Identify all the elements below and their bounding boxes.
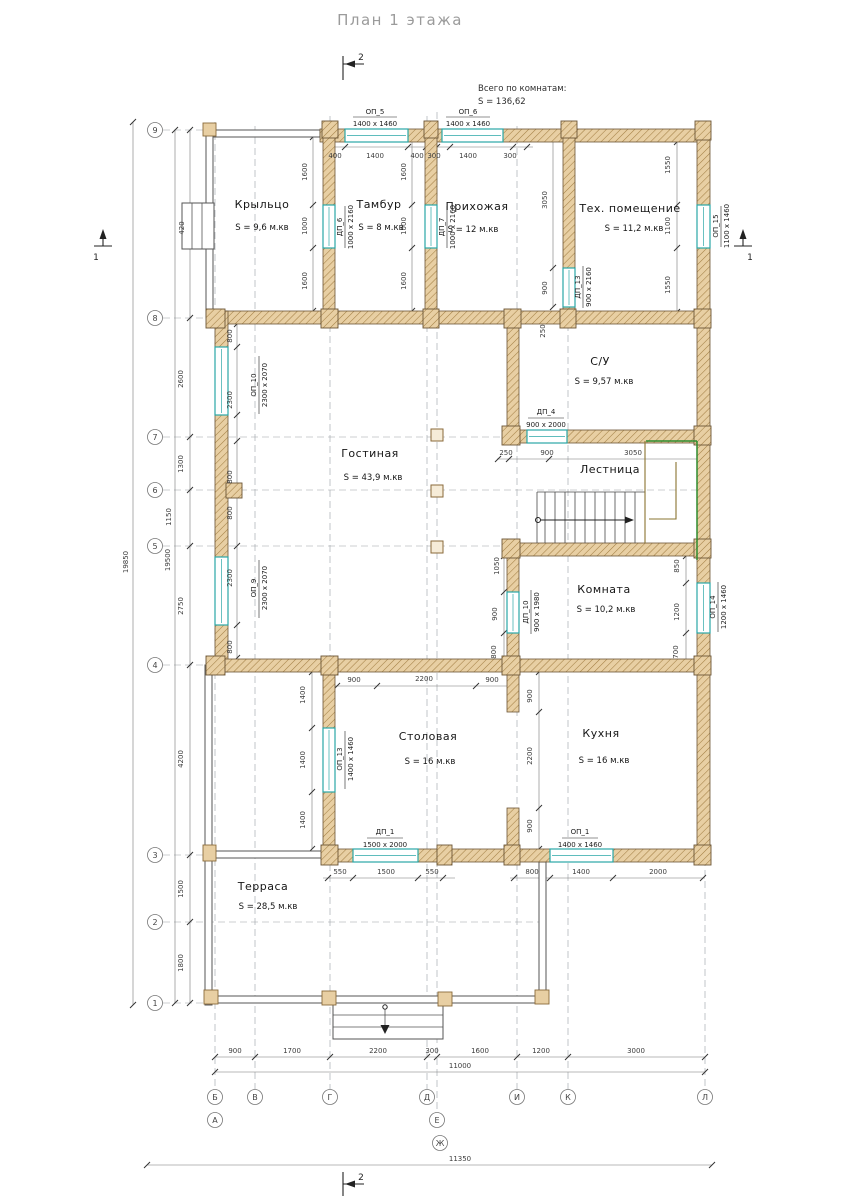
dimension-label: 2200 [415, 675, 433, 683]
dimension-label: 11000 [449, 1062, 471, 1070]
dimension-label: 2300 [226, 569, 234, 587]
dimension-label: 3050 [624, 449, 642, 457]
wall-segment [507, 311, 519, 443]
room-label-lestnitsa: Лестница [580, 463, 640, 476]
summary-line1: Всего по комнатам: [478, 84, 567, 94]
dimension-label: 1500 [177, 880, 185, 898]
opening-size: 1100 x 1460 [723, 204, 731, 248]
dimension-label: 1600 [471, 1047, 489, 1055]
section-marker-left: 1 [93, 253, 99, 263]
window-op15 [697, 205, 710, 248]
axis-row-label: 7 [152, 433, 157, 442]
dimension-label: 900 [485, 676, 498, 684]
dimension-label: 900 [228, 1047, 241, 1055]
dimension-label: 900 [526, 689, 534, 702]
dimension-label: 1700 [283, 1047, 301, 1055]
terrace-left-wall [205, 665, 212, 1005]
room-area-prihozhaya: S = 12 м.кв [448, 225, 499, 235]
room-label-krylco: Крыльцо [235, 198, 290, 211]
porch-steps [182, 203, 214, 249]
terrace-bottom-wall [205, 996, 546, 1003]
room-label-kuhnya: Кухня [582, 727, 619, 740]
dimension-label: 420 [178, 221, 186, 234]
room-label-tehpom: Тех. помещение [578, 202, 680, 215]
dimension-label: 550 [425, 868, 438, 876]
axis-row-label: 8 [152, 314, 157, 323]
window-op5 [345, 129, 408, 142]
opening-label: ОП_13 [336, 747, 344, 770]
opening-size: 1400 x 1460 [347, 737, 355, 781]
door-dp7 [425, 205, 437, 248]
axis-col-label: Г [328, 1093, 333, 1102]
drawing-sheet: 400 1400 400 300 1400 300 250 900 3050 9… [0, 0, 847, 1200]
opening-size: 900 x 1980 [533, 592, 541, 632]
dimension-label: 1800 [177, 954, 185, 972]
dimension-label: 2750 [177, 597, 185, 615]
page-title: План 1 этажа [337, 11, 463, 29]
opening-label: ОП_5 [366, 108, 385, 116]
room-area-tehpom: S = 11,2 м.кв [605, 224, 664, 234]
axis-row-label: 2 [152, 918, 157, 927]
dimension-label: 11350 [449, 1155, 471, 1163]
opening-label: ОП_1 [571, 828, 590, 836]
stair-walkline-start [536, 518, 541, 523]
opening-size: 1000 x 2160 [347, 205, 355, 249]
dimension-label: 900 [541, 281, 549, 294]
axis-col-label: Д [424, 1093, 430, 1102]
dimension-label: 300 [425, 1047, 438, 1055]
dimension-label: 1400 [459, 152, 477, 160]
axis-col-label: И [514, 1093, 520, 1102]
dimension-label: 1400 [299, 751, 307, 769]
room-label-tambur: Тамбур [355, 198, 401, 211]
wall-segment [209, 311, 710, 324]
dimension-label: 1400 [299, 686, 307, 704]
dimension-label: 250 [499, 449, 512, 457]
dimension-label: 4200 [177, 750, 185, 768]
dimension-label: 2300 [226, 391, 234, 409]
axis-col-label: А [212, 1116, 218, 1125]
opening-size: 1500 x 2000 [363, 841, 407, 849]
dimension-label: 2600 [177, 370, 185, 388]
axis-col-label: В [252, 1093, 258, 1102]
door-dp4 [527, 430, 567, 443]
axis-col-label: Б [212, 1093, 218, 1102]
section-marker-bottom: 2 [358, 1173, 364, 1183]
opening-label: ДП_13 [574, 275, 582, 298]
window-op9 [215, 557, 228, 625]
dimension-label: 900 [540, 449, 553, 457]
axis-row-label: 6 [152, 486, 157, 495]
dimension-label: 19850 [122, 551, 130, 573]
room-area-su: S = 9,57 м.кв [575, 377, 634, 387]
terrace-top-edge [211, 851, 323, 858]
dimension-label: 1600 [400, 163, 408, 181]
room-label-komnata: Комната [577, 583, 630, 596]
floor-plan-drawing: 400 1400 400 300 1400 300 250 900 3050 9… [0, 0, 847, 1200]
door-dp1 [353, 849, 418, 862]
room-label-prihozhaya: Прихожая [446, 200, 509, 213]
room-label-terrasa: Терраса [237, 880, 288, 893]
door-dp6 [323, 205, 335, 248]
window-op1 [550, 849, 613, 862]
dimension-label: 1600 [301, 272, 309, 290]
room-label-stolovaya: Столовая [399, 730, 457, 743]
wall-segment [209, 659, 710, 672]
dimension-label: 1200 [673, 603, 681, 621]
wall-segment [507, 543, 710, 556]
entrance-steps [333, 1003, 443, 1039]
thin-walls-layer [182, 130, 546, 1039]
dimension-label: 3000 [627, 1047, 645, 1055]
opening-size: 2300 x 2070 [261, 363, 269, 407]
room-area-krylco: S = 9,6 м.кв [235, 223, 288, 233]
axis-row-label: 1 [152, 999, 157, 1008]
opening-size: 900 x 2160 [585, 267, 593, 307]
opening-size: 1400 x 1460 [353, 120, 397, 128]
section-marker-top: 2 [358, 53, 364, 63]
dimension-label: 19500 [164, 549, 172, 571]
dimension-label: 2200 [369, 1047, 387, 1055]
dimension-label: 1550 [664, 276, 672, 294]
room-label-su: С/У [590, 355, 610, 368]
stair-direction-arrow [625, 517, 634, 524]
axis-row-label: 5 [152, 542, 157, 551]
dimension-label: 300 [427, 152, 440, 160]
dimension-label: 800 [490, 645, 498, 658]
dimension-label: 2200 [526, 747, 534, 765]
dimension-label: 900 [491, 607, 499, 620]
dimension-label: 1500 [377, 868, 395, 876]
opening-size: 900 x 2000 [526, 421, 566, 429]
axis-col-label: Ж [436, 1139, 445, 1148]
dimension-label: 1600 [301, 163, 309, 181]
dimension-label: 800 [226, 470, 234, 483]
opening-size: 1400 x 1460 [446, 120, 490, 128]
room-area-tambur: S = 8 м.кв [358, 223, 403, 233]
opening-label: ОП_15 [712, 214, 720, 237]
dimension-label: 1050 [493, 557, 501, 575]
opening-label: ДП_10 [522, 600, 530, 623]
dimension-label: 2000 [649, 868, 667, 876]
dimension-label: 550 [333, 868, 346, 876]
dimension-label: 800 [226, 640, 234, 653]
dimension-label: 700 [672, 645, 680, 658]
window-op6 [442, 129, 503, 142]
summary-line2: S = 136,62 [478, 97, 526, 107]
dimension-label: 400 [328, 152, 341, 160]
dimension-label: 1200 [532, 1047, 550, 1055]
dimension-label: 800 [525, 868, 538, 876]
dimension-label: 300 [503, 152, 516, 160]
dimension-label: 1400 [366, 152, 384, 160]
opening-size: 1400 x 1460 [558, 841, 602, 849]
dimension-label: 1400 [572, 868, 590, 876]
room-area-gostinaya: S = 43,9 м.кв [344, 473, 403, 483]
opening-size: 1200 x 1460 [720, 585, 728, 629]
axis-col-label: Е [434, 1116, 439, 1125]
opening-label: ДП_1 [376, 828, 395, 836]
dimension-label: 900 [347, 676, 360, 684]
opening-size: 2300 x 2070 [261, 566, 269, 610]
opening-label: ОП_14 [709, 595, 717, 619]
dimension-label: 1600 [400, 272, 408, 290]
room-area-stolovaya: S = 16 м.кв [405, 757, 456, 767]
dimension-label: 800 [226, 506, 234, 519]
dimension-label: 1300 [177, 455, 185, 473]
dimension-label: 3050 [541, 191, 549, 209]
room-area-terrasa: S = 28,5 м.кв [239, 902, 298, 912]
opening-label: ОП_10 [250, 373, 258, 396]
openings-layer [215, 129, 710, 862]
dimension-label: 800 [226, 329, 234, 342]
window-op13 [323, 728, 335, 792]
opening-label: ДП_7 [438, 218, 446, 237]
door-dp10 [507, 592, 519, 633]
column-post [431, 541, 443, 553]
room-label-gostinaya: Гостиная [341, 447, 399, 460]
column-post [431, 485, 443, 497]
dimension-label: 1150 [165, 508, 173, 526]
room-area-komnata: S = 10,2 м.кв [577, 605, 636, 615]
axis-row-label: 3 [152, 851, 157, 860]
dimension-label: 250 [539, 324, 547, 337]
axis-col-label: Л [702, 1093, 708, 1102]
opening-labels: ОП_5 1400 x 1460 ОП_6 1400 x 1460 ОП_15 … [250, 108, 731, 849]
axis-col-label: К [565, 1093, 571, 1102]
dimension-label: 900 [526, 819, 534, 832]
dimension-labels-horizontal: 400 1400 400 300 1400 300 250 900 3050 9… [228, 152, 667, 1163]
dimension-label: 400 [410, 152, 423, 160]
column-post [431, 429, 443, 441]
opening-label: ДП_4 [537, 408, 556, 416]
posts-layer [203, 121, 711, 1006]
dimension-label: 1100 [664, 217, 672, 235]
dimension-label: 1550 [664, 156, 672, 174]
opening-label: ДП_6 [336, 217, 344, 236]
dimension-label: 850 [673, 559, 681, 572]
opening-label: ОП_9 [250, 579, 258, 598]
dimension-label: 1400 [299, 811, 307, 829]
section-marker-right: 1 [747, 253, 753, 263]
axis-row-label: 4 [152, 661, 157, 670]
porch-top-wall [206, 130, 320, 137]
dimension-label: 1000 [301, 217, 309, 235]
opening-label: ОП_6 [459, 108, 478, 116]
terrace-right-wall [539, 862, 546, 1003]
room-area-kuhnya: S = 16 м.кв [579, 756, 630, 766]
axis-row-label: 9 [152, 126, 157, 135]
